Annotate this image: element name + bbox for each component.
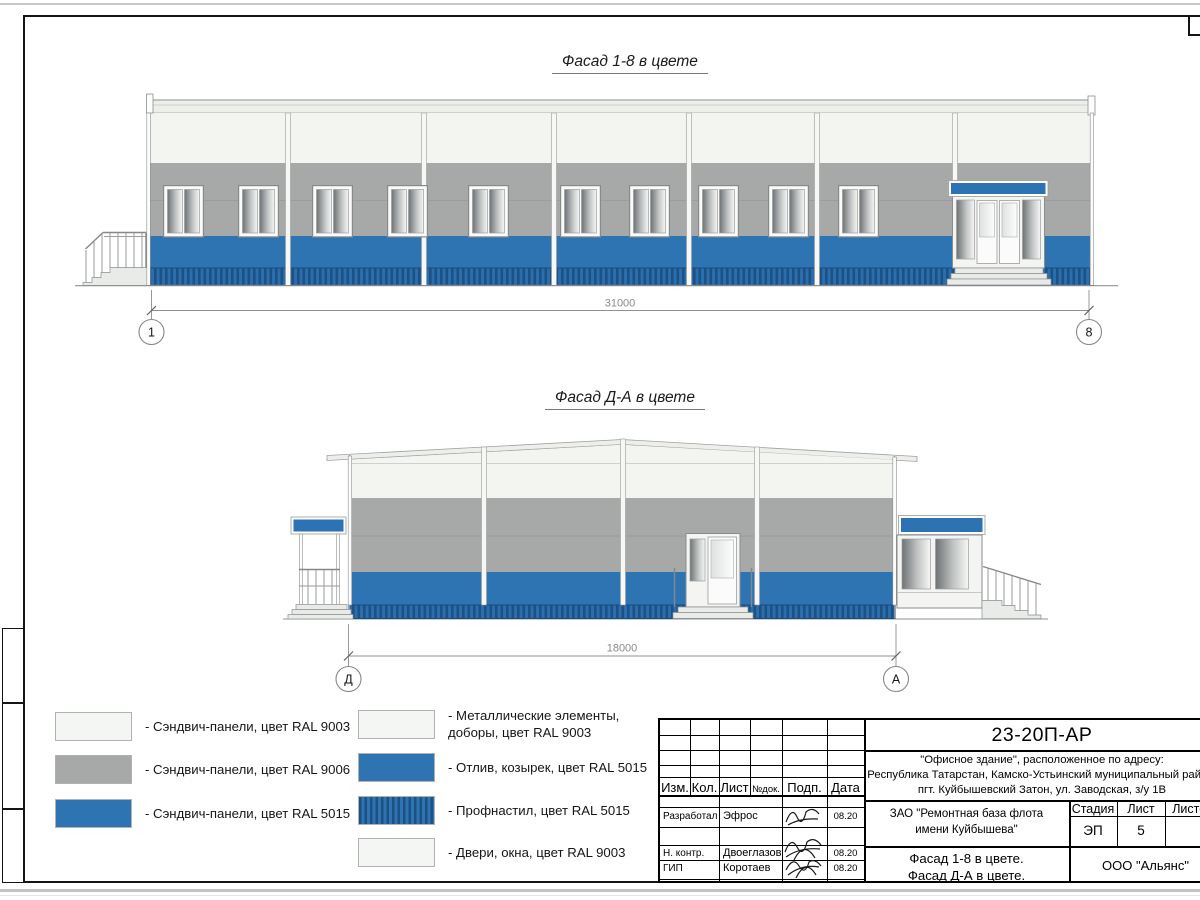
col-list: Лист	[719, 780, 750, 795]
row-date: 08.20	[827, 863, 864, 874]
dimension-bottom-value: 18000	[607, 643, 638, 655]
legend-label: - Металлические элементы, доборы, цвет R…	[448, 707, 656, 741]
axis-1-label: 1	[148, 326, 155, 340]
col-data: Дата	[827, 780, 864, 795]
facade-1-8-drawing: 31000 1 8	[75, 94, 1118, 345]
address-line2: Республика Татарстан, Камско-Устьинский …	[864, 769, 1200, 781]
legend-label: - Двери, окна, цвет RAL 9003	[448, 844, 625, 861]
axis-bubble-8: 8	[1077, 320, 1102, 345]
legend-item: - Металлические элементы, доборы, цвет R…	[358, 707, 658, 741]
axis-d-label: Д	[344, 673, 353, 687]
left-margin-divider	[2, 808, 23, 810]
annex-right	[897, 516, 1041, 619]
axis-bubble-1: 1	[139, 320, 164, 345]
legend-item: - Двери, окна, цвет RAL 9003	[358, 838, 658, 867]
row-name: Эфрос	[723, 810, 758, 822]
row-date: 08.20	[827, 811, 864, 822]
sheet-name-line1: Фасад 1-8 в цвете.	[864, 851, 1069, 866]
swatch-ral9003	[358, 838, 435, 867]
row-role: Разработал	[663, 811, 717, 822]
dimension-bottom: 18000	[344, 624, 901, 667]
axis-bubble-d: Д	[336, 667, 361, 692]
legend-item: - Профнастил, цвет RAL 5015	[358, 796, 658, 825]
signature-scribbles	[782, 800, 827, 881]
stage-label: Стадия	[1069, 802, 1117, 816]
legend-item: - Сэндвич-панели, цвет RAL 9003	[55, 712, 355, 741]
dimension-top: 31000	[147, 290, 1094, 320]
legend-label: - Сэндвич-панели, цвет RAL 9003	[145, 718, 350, 735]
row-name: Двоеглазов	[723, 847, 781, 859]
facade-d-a-drawing: 18000 Д А	[283, 439, 1048, 692]
swatch-ral5015	[358, 753, 435, 782]
paper-edge-bottom	[0, 889, 1200, 892]
client-line2: имени Куйбышева"	[864, 824, 1069, 836]
row-name: Коротаев	[723, 862, 771, 874]
address-line3: пгт. Куйбышевский Затон, ул. Заводская, …	[864, 784, 1200, 796]
sheet-label: Лист	[1117, 802, 1165, 816]
facade-drawings: 31000 1 8	[0, 0, 1200, 700]
stage-value: ЭП	[1069, 823, 1117, 838]
swatch-ral9003	[55, 712, 132, 741]
sheet-name-line2: Фасад Д-А в цвете.	[864, 868, 1069, 883]
left-margin-divider	[2, 702, 23, 704]
legend-label: - Сэндвич-панели, цвет RAL 5015	[145, 805, 350, 822]
legend-item: - Отлив, козырек, цвет RAL 5015	[358, 753, 658, 782]
legend-item: - Сэндвич-панели, цвет RAL 5015	[55, 799, 355, 828]
sheets-label: Листов	[1165, 802, 1200, 816]
legend-label: - Сэндвич-панели, цвет RAL 9006	[145, 761, 350, 778]
stairs-left	[83, 233, 148, 286]
legend-item: - Сэндвич-панели, цвет RAL 9006	[55, 755, 355, 784]
drawing-sheet: Фасад 1-8 в цвете Фасад Д-А в цвете	[0, 0, 1200, 900]
company-name: ООО "Альянс"	[1071, 858, 1200, 873]
swatch-ral9006	[55, 755, 132, 784]
row-date: 08.20	[827, 848, 864, 859]
porch-left	[288, 517, 353, 619]
axis-bubble-a: А	[884, 667, 909, 692]
col-kol: Кол.	[690, 780, 719, 795]
row-role: Н. контр.	[663, 848, 704, 859]
dimension-top-value: 31000	[605, 298, 636, 310]
swatch-ral5015-profiled	[358, 796, 435, 825]
legend-label: - Профнастил, цвет RAL 5015	[448, 802, 630, 819]
title-block: Изм. Кол. Лист №док. Подп. Дата Разработ…	[658, 718, 1200, 883]
axis-a-label: А	[892, 673, 901, 687]
main-entrance	[947, 181, 1051, 286]
address-line1: "Офисное здание", расположенное по адрес…	[864, 754, 1200, 766]
doc-number: 23-20П-АР	[864, 724, 1200, 747]
col-podp: Подп.	[782, 780, 827, 795]
legend-label: - Отлив, козырек, цвет RAL 5015	[448, 759, 647, 776]
client-line1: ЗАО "Ремонтная база флота	[864, 808, 1069, 820]
paper-edge-bottom-shadow	[0, 895, 1200, 896]
axis-8-label: 8	[1086, 326, 1093, 340]
row-role: ГИП	[663, 863, 683, 874]
col-ndok: №док.	[750, 784, 782, 795]
col-izm: Изм.	[660, 780, 690, 795]
swatch-ral5015	[55, 799, 132, 828]
swatch-ral9003	[358, 710, 435, 739]
sheet-value: 5	[1117, 823, 1165, 838]
